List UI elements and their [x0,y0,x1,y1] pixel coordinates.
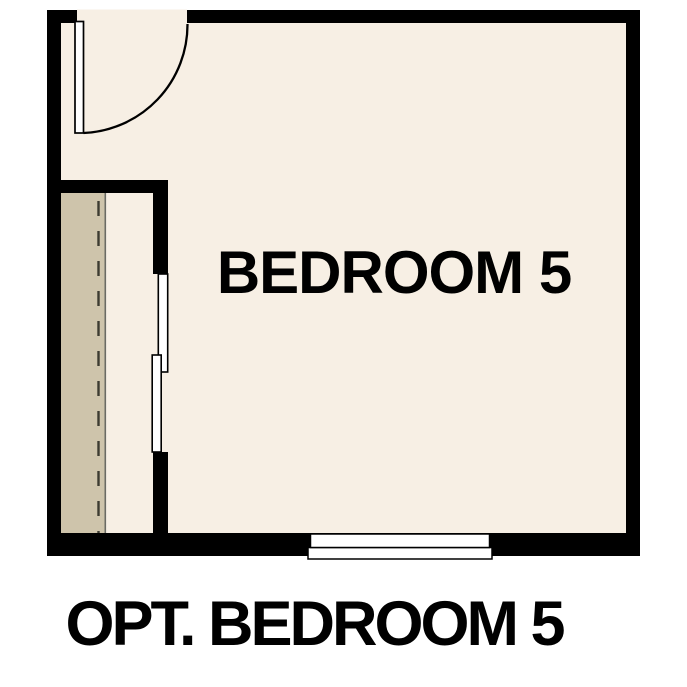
closet-wall-horizontal [47,180,168,193]
doorway-opening [77,10,187,24]
sliding-door-panel-lower [152,355,161,452]
window-sill [308,548,492,560]
window-sash [311,534,490,548]
floor-plan-drawing [0,0,687,687]
plan-caption: OPT. BEDROOM 5 [0,593,628,656]
room-label: BEDROOM 5 [164,243,624,303]
floor-plan-page: BEDROOM 5 OPT. BEDROOM 5 [0,0,687,687]
door-leaf [75,22,84,134]
closet-wall-stub-lower [153,452,168,533]
